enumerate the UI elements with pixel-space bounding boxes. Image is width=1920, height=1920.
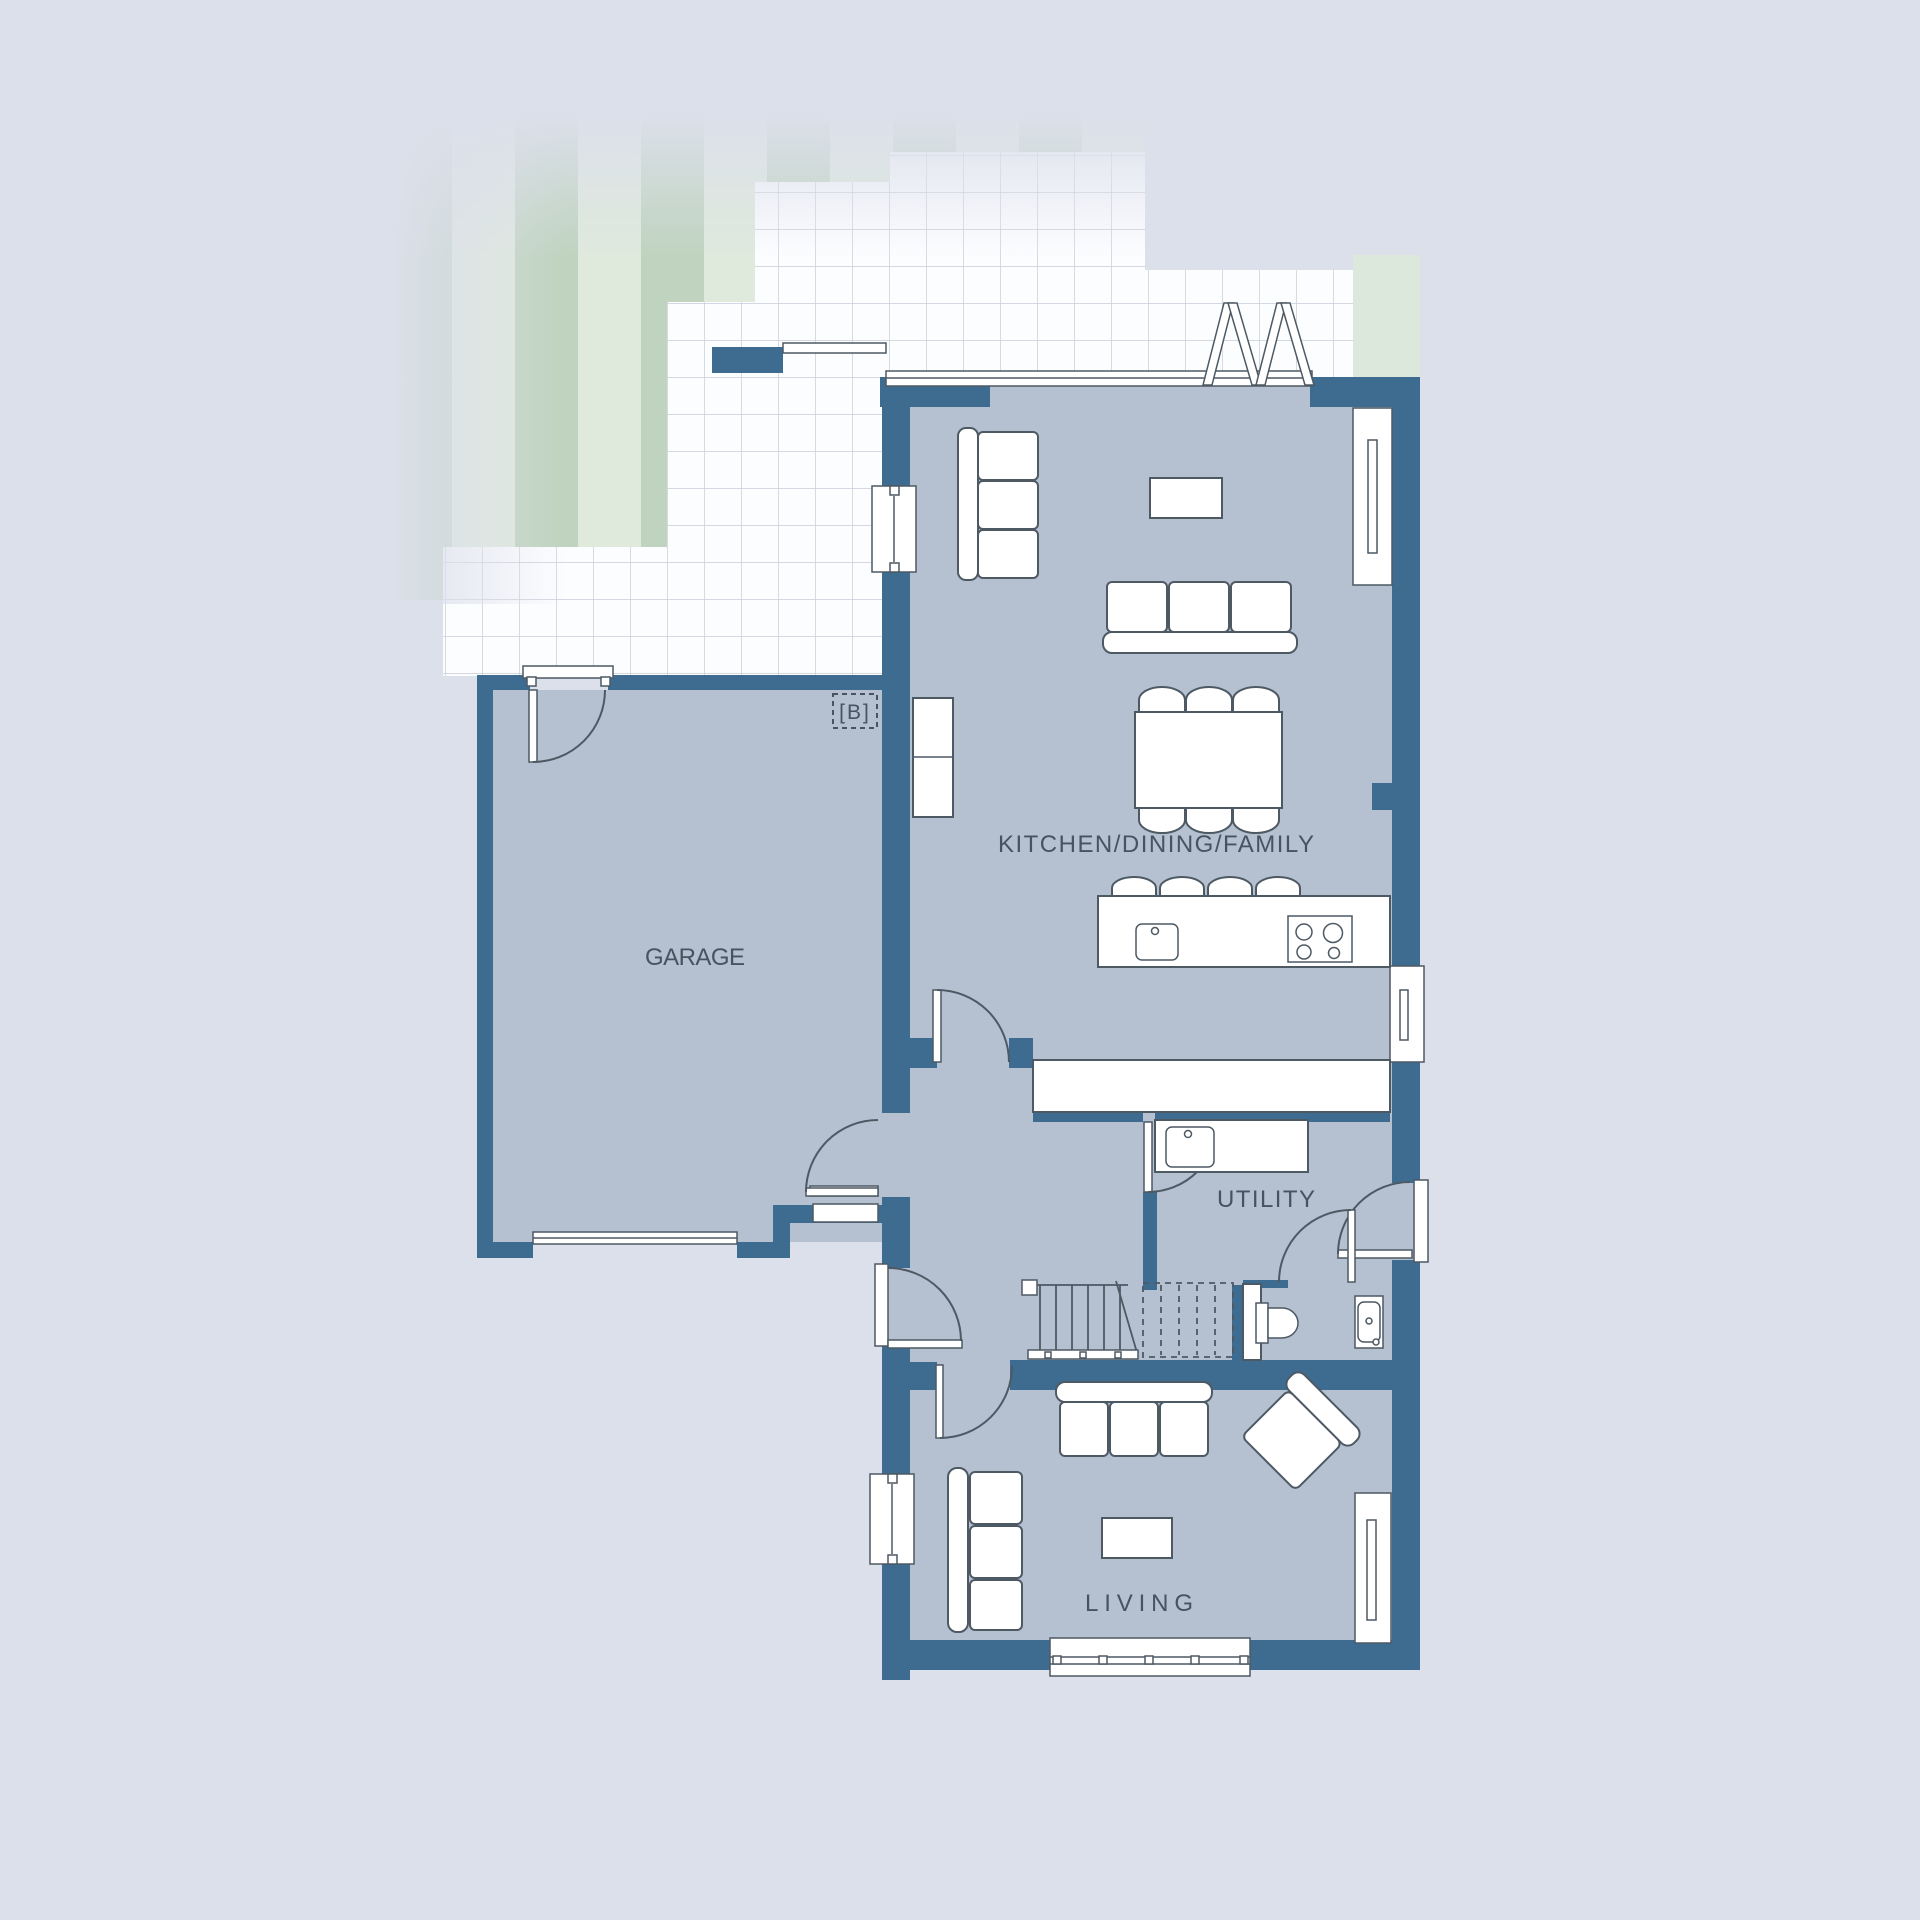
kitchen-left-window bbox=[872, 486, 916, 572]
living-left-window bbox=[870, 1474, 914, 1564]
utility-tap bbox=[1185, 1131, 1192, 1138]
barstool bbox=[1208, 877, 1252, 896]
kitchen-coffee-table bbox=[1150, 478, 1222, 518]
room-label-garage: GARAGE bbox=[645, 944, 747, 971]
island-sink bbox=[1136, 924, 1178, 960]
garden-left-fade bbox=[388, 112, 565, 604]
room-label-kitchen: KITCHEN/DINING/FAMILY bbox=[998, 831, 1316, 858]
barstool bbox=[1160, 877, 1204, 896]
garden-wing-wall bbox=[712, 347, 783, 373]
kitchen-right-lower-window bbox=[1390, 966, 1424, 1062]
wc-basin bbox=[1355, 1296, 1383, 1348]
garage-vehicle-door bbox=[533, 1232, 737, 1244]
barstool bbox=[1112, 877, 1156, 896]
living-sofa-top bbox=[1056, 1382, 1212, 1456]
living-right-window bbox=[1355, 1493, 1391, 1643]
living-bay-window bbox=[1050, 1638, 1250, 1676]
barstool bbox=[1256, 877, 1300, 896]
garage-door-head bbox=[523, 666, 613, 678]
room-label-utility: UTILITY bbox=[1217, 1186, 1317, 1213]
hob bbox=[1288, 916, 1352, 962]
kitchen-right-upper-window bbox=[1353, 408, 1392, 585]
kitchen-sofa-left bbox=[958, 428, 1038, 580]
plot-marker-b-label: [B] bbox=[839, 701, 871, 724]
floor-plan-page: GARAGE KITCHEN/DINING/FAMILY UTILITY LIV… bbox=[0, 0, 1920, 1920]
kitchen-sofa-top bbox=[1103, 582, 1297, 653]
kitchen-worktop bbox=[1033, 1060, 1390, 1112]
living-sofa-left bbox=[948, 1468, 1022, 1632]
kitchen-tall-unit bbox=[913, 698, 953, 817]
utility-furniture bbox=[1155, 1120, 1308, 1172]
dining-table-and-chairs bbox=[1135, 687, 1282, 833]
living-coffee-table bbox=[1102, 1518, 1172, 1558]
floor-plan-drawing: GARAGE KITCHEN/DINING/FAMILY UTILITY LIV… bbox=[0, 0, 1920, 1920]
stairs-newel-post bbox=[1022, 1280, 1037, 1295]
